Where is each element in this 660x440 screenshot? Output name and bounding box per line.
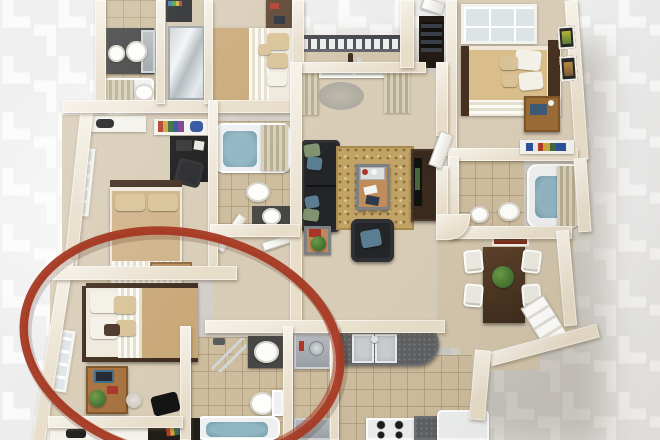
desk-mid-papers <box>193 140 204 150</box>
wall-outer-left-top <box>95 0 106 112</box>
sink-bottom <box>254 341 279 363</box>
nightstand-laptop <box>530 104 547 115</box>
side-table-plant <box>311 236 326 251</box>
sink-right <box>126 41 147 62</box>
desk-red-item <box>270 3 279 9</box>
sofa-cushion-line <box>306 185 336 187</box>
closet-shelf-items <box>526 143 566 151</box>
wall-bath2-south <box>210 224 300 237</box>
shower-curtain1 <box>106 80 134 102</box>
wall-laundry-kitchen <box>330 326 339 440</box>
picture-frame2-art <box>564 62 574 77</box>
toilet-right-bath <box>498 202 520 221</box>
dryer <box>294 418 331 440</box>
wardrobe-clothes <box>421 22 442 52</box>
shelf-blue-items <box>190 121 203 132</box>
picture-frame1-art <box>562 31 572 45</box>
wall-bed2-east <box>208 100 218 272</box>
sink-right-bath <box>470 206 489 223</box>
bed-top-blanket <box>213 28 249 102</box>
round-rug <box>318 82 364 110</box>
wall-central-top <box>292 0 304 68</box>
desk-bl-red-item <box>107 386 118 394</box>
bed-mid-pillow1 <box>115 194 145 211</box>
nightstand-cup <box>548 100 554 106</box>
dining-chair2 <box>463 283 484 308</box>
toilet-bottom-tank <box>272 390 283 416</box>
shelf-books <box>158 121 184 132</box>
bed-right-pillow1 <box>514 49 542 72</box>
bed-right-footboard <box>461 46 469 116</box>
armchair-pillow <box>360 228 383 248</box>
toilet-mid <box>246 182 270 202</box>
sofa-pillow-blue2 <box>304 195 320 209</box>
desk-bl-stool <box>126 392 142 408</box>
curtain-right <box>384 68 410 113</box>
sofa-pillow-green2 <box>302 208 320 222</box>
tub-mid-curtain <box>261 125 288 171</box>
dining-centerpiece <box>492 266 514 288</box>
wall-balcony-right <box>400 0 414 68</box>
desk-bl-plant <box>89 390 106 407</box>
dining-chair3 <box>521 249 543 274</box>
tub-bottom-water <box>206 422 268 437</box>
bed-top-pillow3 <box>258 44 271 55</box>
kitchen-faucet <box>371 336 378 343</box>
window-right-bedroom <box>461 4 537 44</box>
sink-mid <box>262 208 281 225</box>
sofa-pillow-blue1 <box>306 156 322 170</box>
wall-bed2-bed4 <box>55 266 237 280</box>
bed-right-pillow2 <box>518 71 544 91</box>
bed-top-sheet <box>249 28 269 102</box>
wall-bath4-east <box>283 326 293 440</box>
bed-right-pillow4 <box>502 74 518 87</box>
desk-tablet <box>274 16 285 24</box>
kitchen-sink-right <box>375 334 397 363</box>
wall-bed4-closet <box>48 416 183 428</box>
curtain-left <box>302 70 319 115</box>
washer-dial <box>309 341 324 356</box>
tray-cup-white <box>371 169 377 175</box>
wall-bath1-closet <box>156 0 165 104</box>
bed-right-pillow3 <box>500 56 518 70</box>
wall-bed2-north <box>62 100 294 113</box>
bed-top-pillow2 <box>267 53 288 68</box>
shower-head <box>213 338 225 345</box>
bed-bl-pillow3 <box>114 296 136 314</box>
washer-knob-red <box>299 341 304 351</box>
bed-mid-pillow2 <box>148 194 178 211</box>
sink-left <box>108 45 125 62</box>
shelf-black-items <box>96 119 114 128</box>
desk-bl-laptop <box>94 370 114 383</box>
shelf-mid-left <box>84 116 146 132</box>
stove-burners <box>372 419 410 440</box>
wall-living-west <box>290 62 302 330</box>
wall-closet-bedtop <box>204 0 213 104</box>
tub-mid-water <box>223 131 257 167</box>
closet-mirror-doors <box>168 26 205 100</box>
wall-living-east-upper <box>436 62 448 136</box>
bed-top-pillow4 <box>267 72 287 86</box>
dining-chair1 <box>463 249 484 274</box>
desk-mid-laptop <box>176 140 192 151</box>
tv-glow <box>415 168 420 190</box>
wall-hall-south <box>205 320 445 333</box>
dresser-items <box>168 1 182 6</box>
closet-bl-items <box>66 429 86 438</box>
tray-cup-red <box>362 169 368 175</box>
floor-plan-screenshot <box>0 0 660 440</box>
bed-bl-pillow-dark <box>104 324 120 336</box>
balcony-railing <box>299 35 402 52</box>
toilet1 <box>134 84 154 101</box>
